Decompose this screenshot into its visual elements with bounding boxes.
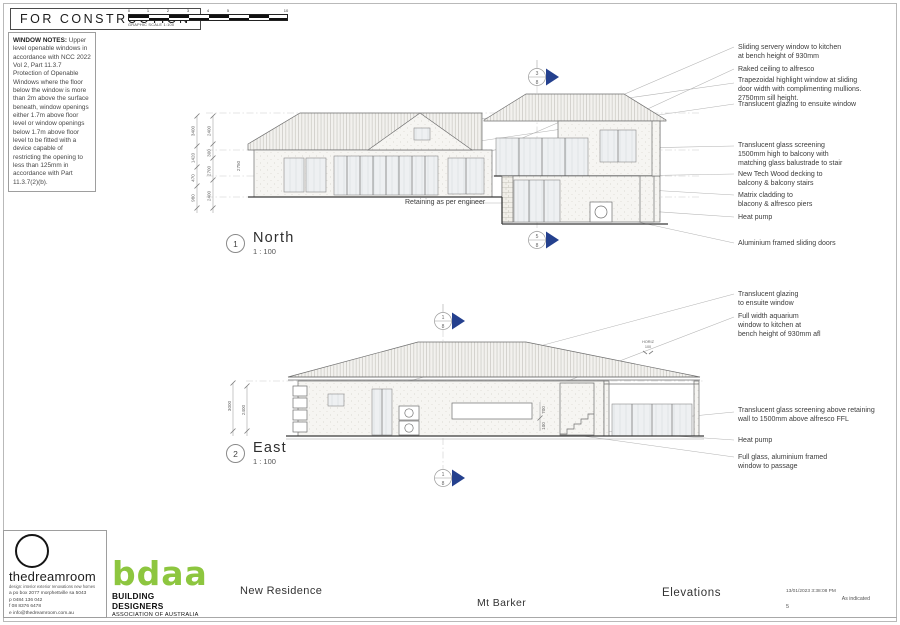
roof-edge-tag: 100 xyxy=(645,345,651,349)
dimension-text: 1420 xyxy=(191,152,196,163)
scale-tick: 0 xyxy=(128,8,130,13)
dimension-text: 3400 xyxy=(191,125,196,136)
project-location: Mt Barker xyxy=(477,597,526,609)
graphic-scale-bar: 0 1 2 3 4 5 10 GRAPHIC SCALE 1:100 xyxy=(128,8,290,27)
dimension-text: 3000 xyxy=(227,400,232,411)
dimension-text: 2400 xyxy=(207,125,212,136)
marker-sheet-number: 8 xyxy=(536,243,539,249)
annotation-note: Matrix cladding to blacony & alfresco pi… xyxy=(738,192,878,210)
section-marker: 1 8 xyxy=(435,470,466,488)
project-name: New Residence xyxy=(240,585,322,597)
brand-tagline: design: interior exterior renovations ne… xyxy=(9,584,101,589)
sheet-number: 5 xyxy=(786,604,789,610)
annotation-note: Sliding servery window to kitchen at ben… xyxy=(738,44,878,62)
dimension-text: 2700 xyxy=(207,165,212,176)
view-title-label: East xyxy=(253,440,287,456)
bdaa-line2: ASSOCIATION OF AUSTRALIA xyxy=(112,612,202,618)
window-notes-title: WINDOW NOTES: xyxy=(13,37,67,44)
marker-view-number: 3 xyxy=(536,71,539,77)
annotation-note: Full width aquarium window to kitchen at… xyxy=(738,313,878,339)
annotation-note: Raked ceiling to alfresco xyxy=(738,66,878,75)
scale-tick: 2 xyxy=(167,8,169,13)
marker-view-number: 1 xyxy=(442,472,445,478)
view-scale-label: 1 : 100 xyxy=(253,247,294,256)
scale-tick: 3 xyxy=(187,8,189,13)
print-timestamp: 13/01/2023 3:38:08 PM xyxy=(786,589,836,594)
scale-bar-ticks: 0 1 2 3 4 5 10 xyxy=(128,8,290,14)
designer-titleblock: thedreamroom design: interior exterior r… xyxy=(3,530,107,618)
view-number-badge: 2 xyxy=(226,444,245,463)
annotation-note: Heat pump xyxy=(738,214,878,223)
annotation-note: Full glass, aluminium framed window to p… xyxy=(738,454,878,472)
scale-tick: 5 xyxy=(227,8,229,13)
view-scale-label: 1 : 100 xyxy=(253,457,287,466)
drawing-sheet: 3400 1420 470 980 2400 300 2700 2400 275… xyxy=(0,0,900,625)
dimension-text: 700 xyxy=(541,406,546,414)
section-marker: 5 8 xyxy=(529,232,560,250)
section-marker: 1 8 xyxy=(435,304,466,330)
east-elevation-drawing xyxy=(286,342,704,439)
view-number-badge: 1 xyxy=(226,234,245,253)
annotation-note: Aluminium framed sliding doors xyxy=(738,240,878,249)
roof-edge-tag: HORIZ xyxy=(642,340,654,344)
view-title-north: 1 North 1 : 100 xyxy=(226,230,294,256)
annotation-note: Translucent glass screening 1500mm high … xyxy=(738,142,878,168)
dimension-text: 2400 xyxy=(207,190,212,201)
contact-address: a po box 2077 morphettville sa 5043 xyxy=(9,591,101,598)
dimension-text: 2750 xyxy=(236,160,241,171)
bdaa-line1: BUILDING DESIGNERS xyxy=(112,591,202,611)
drawing-scale: As indicated xyxy=(786,596,870,602)
view-title-east: 2 East 1 : 100 xyxy=(226,440,287,466)
scale-bar xyxy=(128,14,288,21)
sheet-title: Elevations xyxy=(662,587,721,599)
annotation-note: Trapezoidal highlight window at sliding … xyxy=(738,77,878,103)
dimension-text: 470 xyxy=(191,174,196,182)
scale-tick: 4 xyxy=(207,8,209,13)
view-title-label: North xyxy=(253,230,294,246)
section-marker: 3 8 xyxy=(529,60,560,86)
retaining-note: Retaining as per engineer xyxy=(405,199,497,206)
dimension-text: 300 xyxy=(207,149,212,157)
marker-sheet-number: 8 xyxy=(536,80,539,86)
thedreamroom-logo-icon xyxy=(15,534,49,568)
marker-sheet-number: 8 xyxy=(442,481,445,487)
dimension-text: 100 xyxy=(541,422,546,430)
scale-tick: 1 xyxy=(147,8,149,13)
bdaa-logo-icon: bdaa xyxy=(112,561,202,587)
annotation-note: Translucent glazing to ensuite window xyxy=(738,291,878,309)
dimension-text: 2400 xyxy=(241,404,246,415)
scale-tick: 10 xyxy=(284,8,288,13)
scale-bar-label: GRAPHIC SCALE 1:100 xyxy=(128,22,290,27)
marker-view-number: 5 xyxy=(536,234,539,240)
north-dimensions: 3400 1420 470 980 2400 300 2700 2400 275… xyxy=(191,114,242,214)
brand-name: thedreamroom xyxy=(9,570,101,583)
annotation-note: Translucent glazing to ensuite window xyxy=(738,101,878,110)
annotation-note: Translucent glass screening above retain… xyxy=(738,407,878,425)
dimension-text: 980 xyxy=(191,194,196,202)
contact-email: e info@thedreamroom.com.au xyxy=(9,611,101,618)
annotation-note: New Tech Wood decking to balcony & balco… xyxy=(738,171,878,189)
window-notes-body: Upper level openable windows in accordan… xyxy=(13,37,91,186)
annotation-note: Heat pump xyxy=(738,437,878,446)
marker-sheet-number: 8 xyxy=(442,324,445,330)
marker-view-number: 1 xyxy=(442,315,445,321)
window-notes: WINDOW NOTES: Upper level openable windo… xyxy=(8,32,96,192)
bdaa-logo-block: bdaa BUILDING DESIGNERS ASSOCIATION OF A… xyxy=(112,561,202,618)
